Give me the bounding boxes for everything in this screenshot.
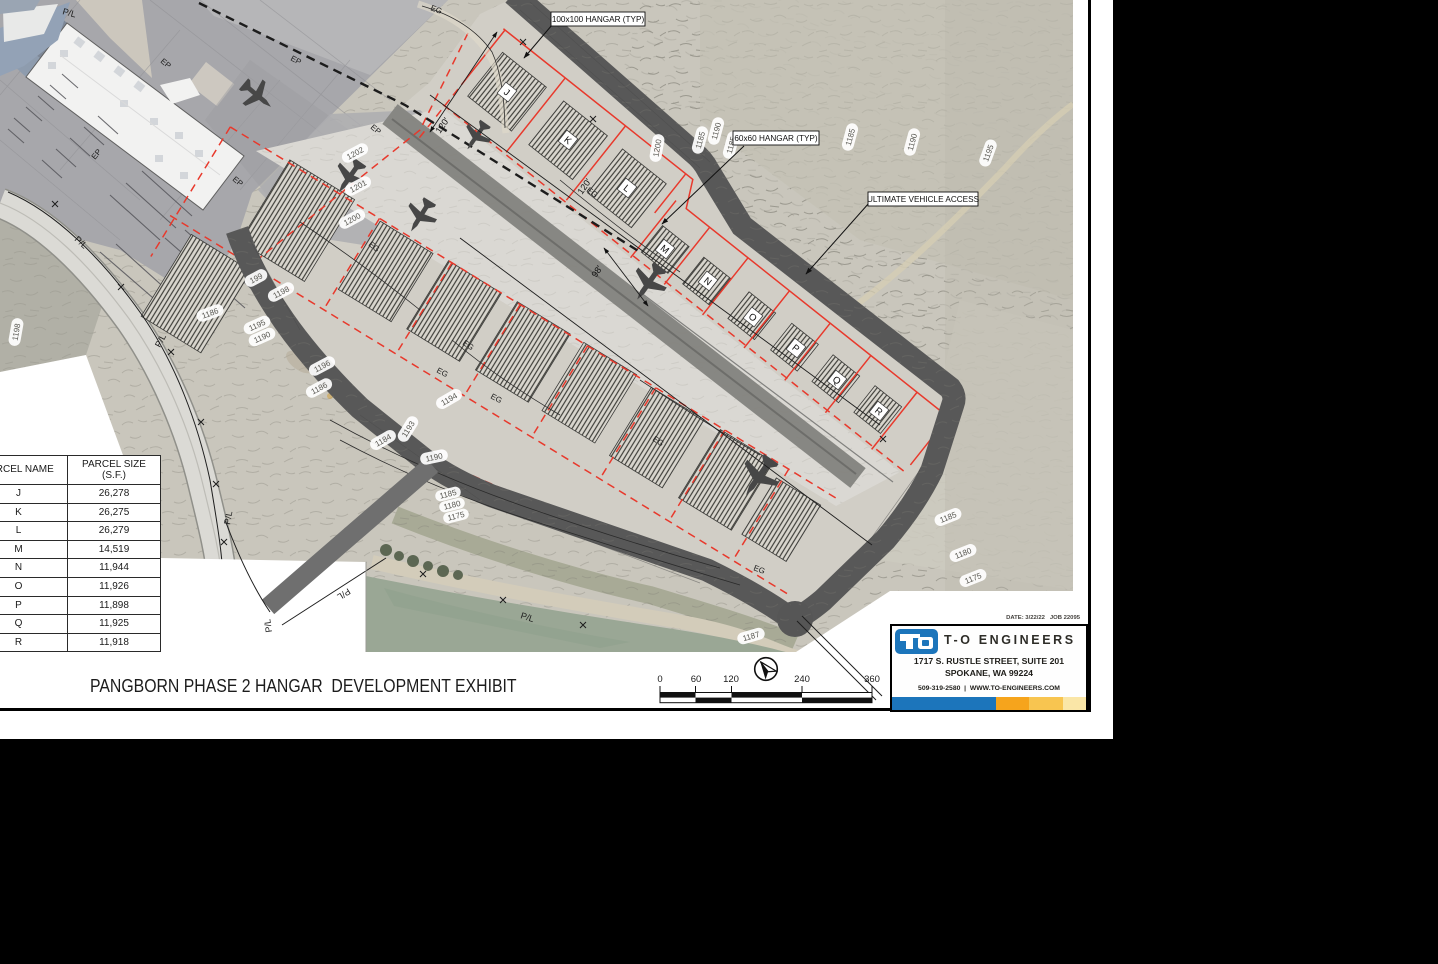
svg-text:0: 0 xyxy=(657,674,662,685)
svg-text:360: 360 xyxy=(864,674,880,685)
svg-text:60x60 HANGAR (TYP): 60x60 HANGAR (TYP) xyxy=(734,134,818,143)
svg-text:ULTIMATE VEHICLE ACCESS: ULTIMATE VEHICLE ACCESS xyxy=(867,195,980,204)
svg-text:P/L: P/L xyxy=(262,618,274,633)
svg-text:60: 60 xyxy=(691,674,702,685)
svg-text:100x100 HANGAR (TYP): 100x100 HANGAR (TYP) xyxy=(552,15,645,24)
svg-text:120: 120 xyxy=(723,674,739,685)
svg-text:240: 240 xyxy=(794,674,810,685)
